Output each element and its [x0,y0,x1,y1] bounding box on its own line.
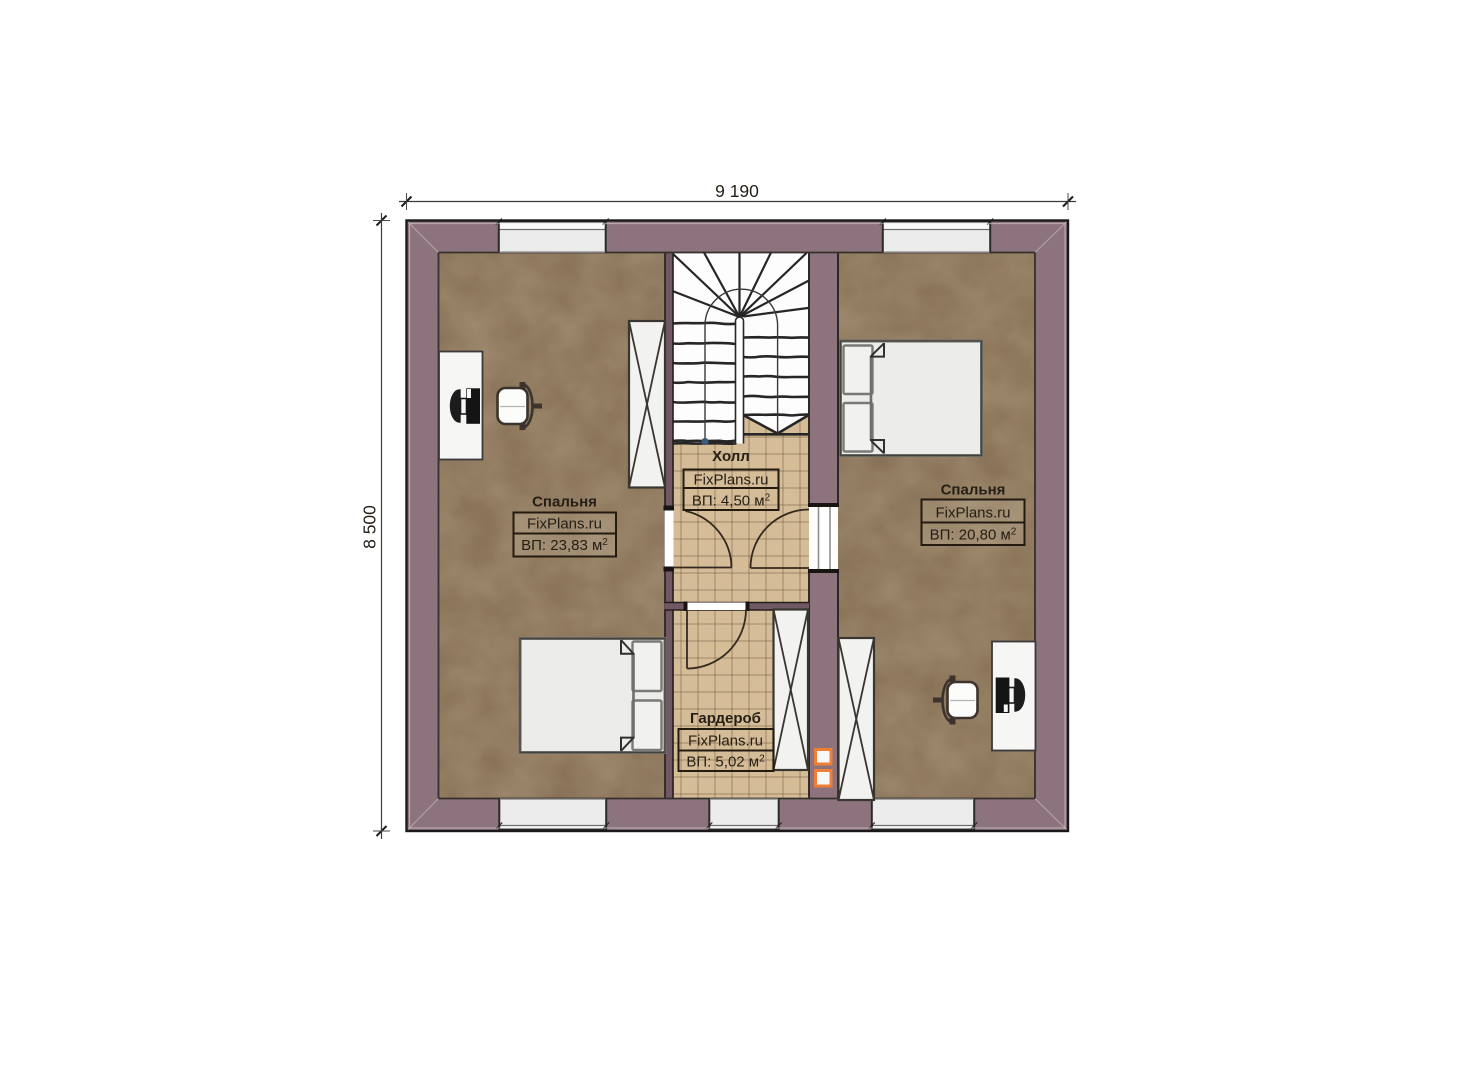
svg-text:FixPlans.ru: FixPlans.ru [688,733,763,750]
svg-text:8 500: 8 500 [360,505,380,549]
svg-text:ВП: 4,50 м2: ВП: 4,50 м2 [692,493,771,510]
svg-text:ВП: 20,80 м2: ВП: 20,80 м2 [930,527,1017,544]
svg-text:Спальня: Спальня [941,482,1006,499]
svg-text:FixPlans.ru: FixPlans.ru [935,505,1010,522]
svg-text:FixPlans.ru: FixPlans.ru [527,516,602,533]
svg-text:Спальня: Спальня [532,494,597,511]
svg-text:ВП: 5,02 м2: ВП: 5,02 м2 [686,754,765,771]
svg-text:9 190: 9 190 [715,181,759,201]
svg-text:ВП: 23,83 м2: ВП: 23,83 м2 [521,537,608,554]
svg-text:Холл: Холл [712,448,750,465]
svg-text:Гардероб: Гардероб [690,710,761,727]
svg-text:FixPlans.ru: FixPlans.ru [693,472,768,489]
